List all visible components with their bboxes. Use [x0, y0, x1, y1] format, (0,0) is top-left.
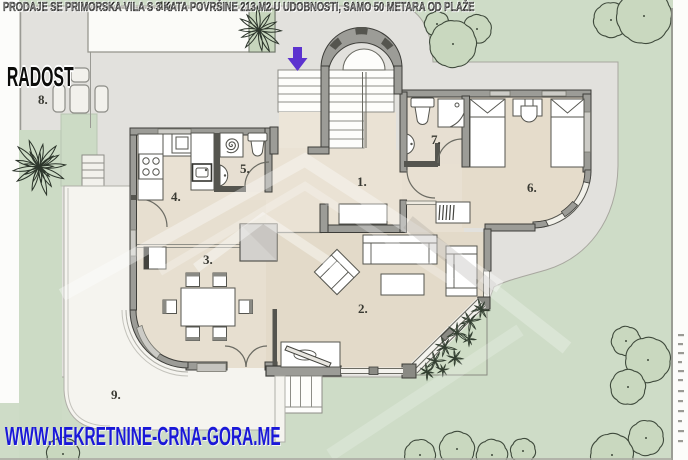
svg-text:RADOST: RADOST	[7, 61, 74, 92]
svg-text:3.: 3.	[203, 252, 213, 267]
svg-text:6.: 6.	[527, 180, 537, 195]
svg-text:2.: 2.	[358, 301, 368, 316]
svg-text:8.: 8.	[38, 92, 48, 107]
svg-text:1.: 1.	[357, 174, 367, 189]
svg-text:7.: 7.	[431, 132, 441, 147]
svg-text:PRODAJE SE PRIMORSKA VILA S 3: PRODAJE SE PRIMORSKA VILA S 3 KATA POVRŠ…	[3, 0, 474, 14]
svg-text:5.: 5.	[240, 161, 250, 176]
svg-text:4.: 4.	[171, 189, 181, 204]
svg-text:9.: 9.	[111, 387, 121, 402]
svg-text:WWW.NEKRETNINE-CRNA-GORA.ME: WWW.NEKRETNINE-CRNA-GORA.ME	[5, 423, 281, 451]
